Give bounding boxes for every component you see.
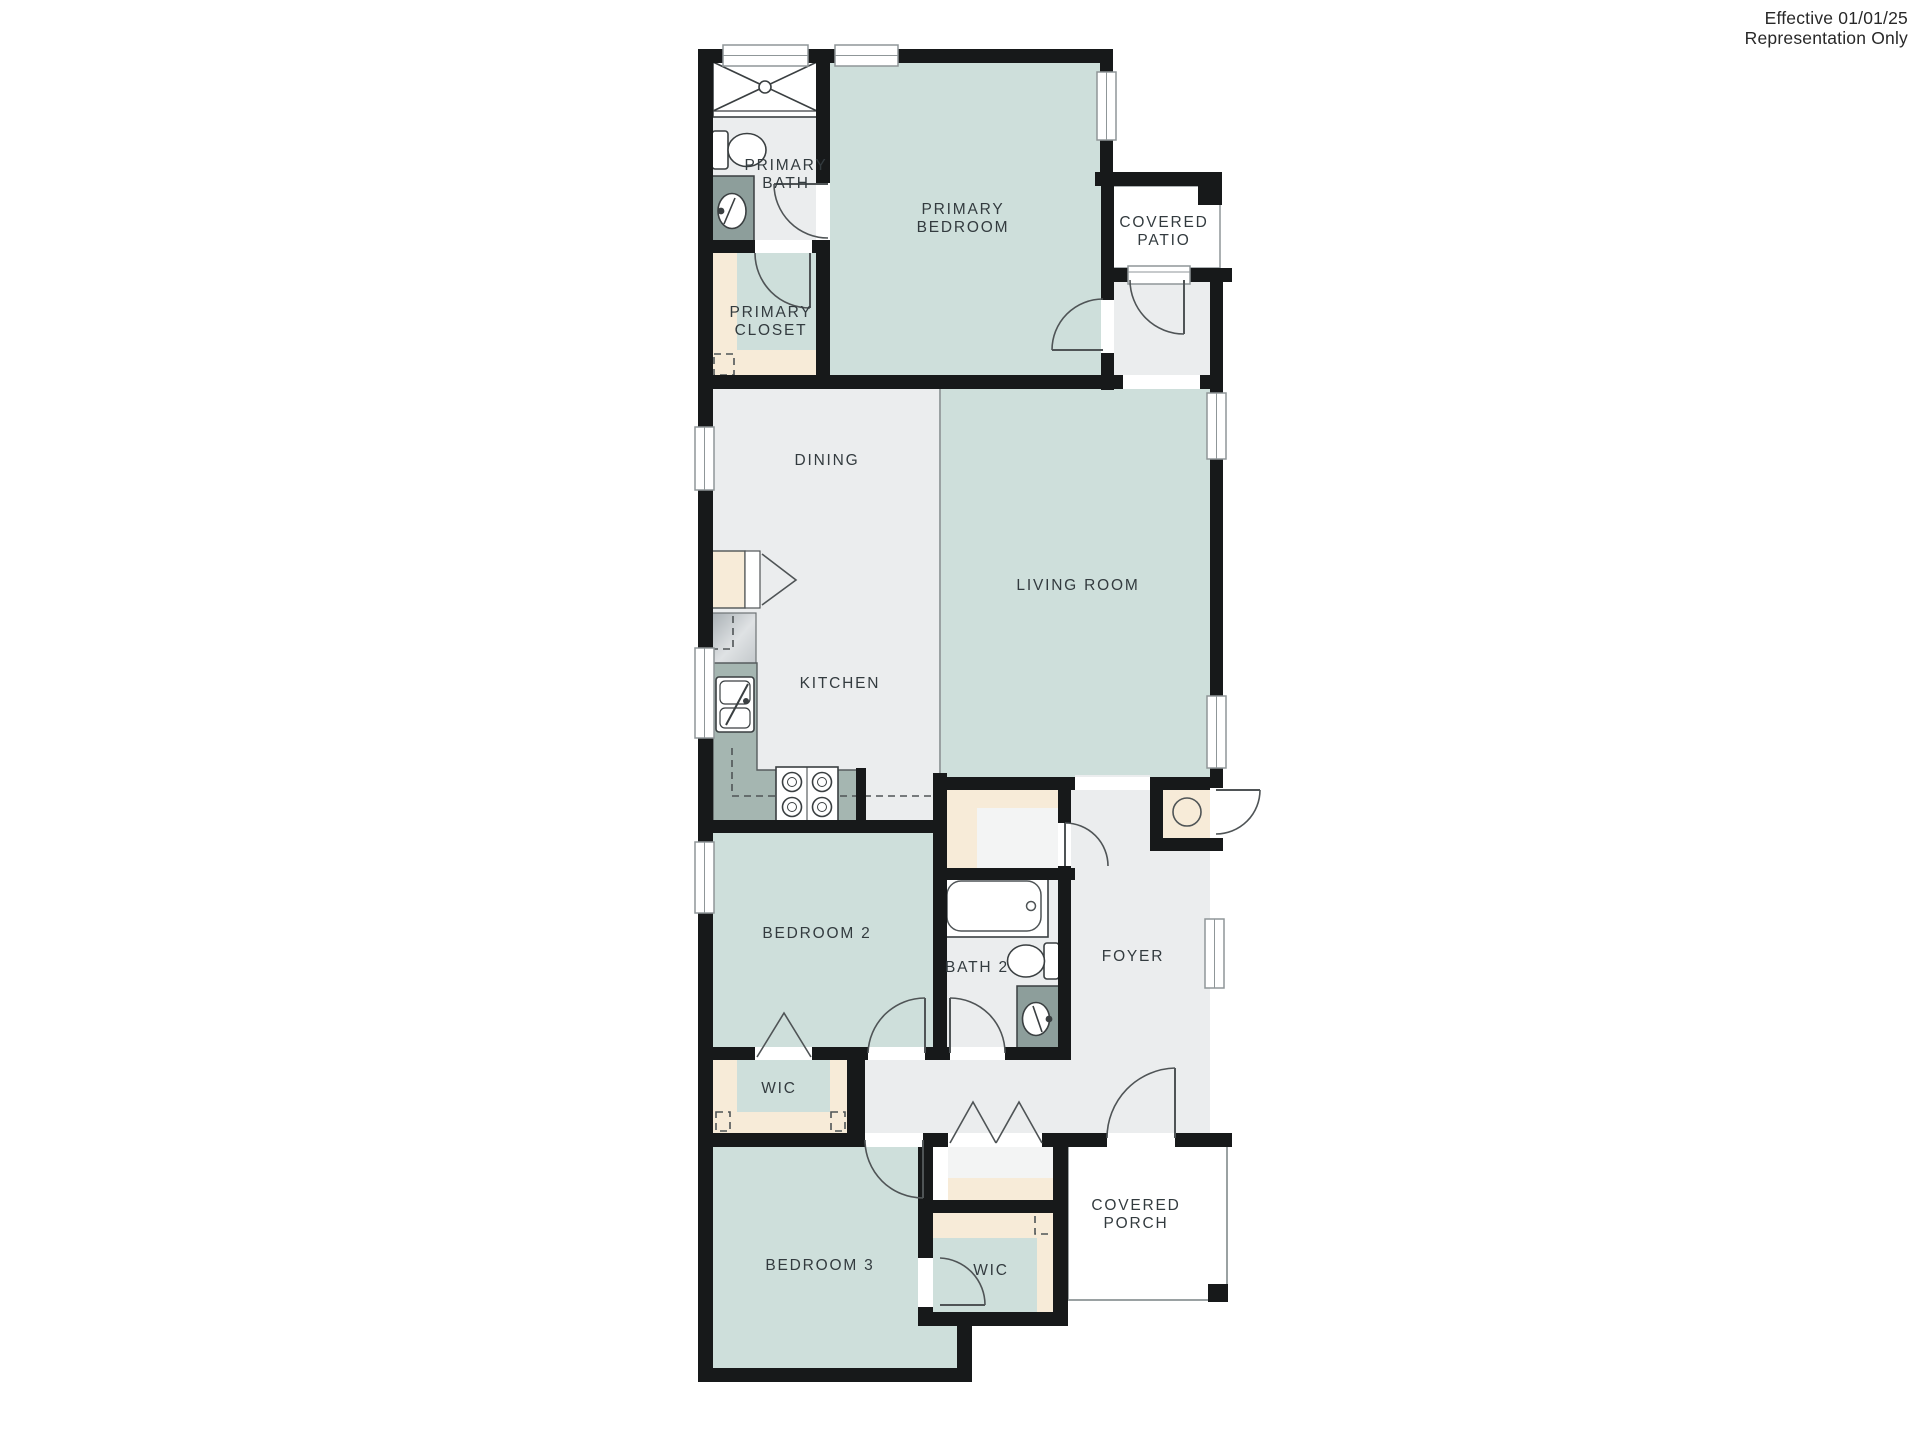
water-heater-icon: [1173, 798, 1201, 826]
effective-date-annotation: Effective 01/01/25 Representation Only: [1745, 8, 1908, 48]
window-icon: [835, 45, 898, 66]
label-bedroom-3: BEDROOM 3: [765, 1257, 874, 1274]
label-primary-closet: PRIMARYCLOSET: [730, 304, 813, 339]
window-icon: [1207, 393, 1226, 459]
label-primary-bedroom: PRIMARYBEDROOM: [917, 201, 1010, 236]
label-bedroom-2: BEDROOM 2: [762, 925, 871, 942]
label-foyer: FOYER: [1102, 948, 1164, 965]
kitchen-sink-icon: [716, 677, 754, 732]
label-dining: DINING: [794, 452, 859, 469]
label-wic-bed3: WIC: [973, 1262, 1009, 1279]
effective-date-text: Effective 01/01/25: [1765, 8, 1908, 28]
window-icon: [695, 648, 714, 738]
floorplan-page: PRIMARYBATH PRIMARYCLOSET PRIMARYBEDROOM…: [0, 0, 1920, 1440]
vanity-sink-icon: [712, 176, 754, 246]
shower-icon: [713, 62, 817, 117]
representation-text: Representation Only: [1745, 28, 1908, 48]
vanity-sink-icon: [1017, 986, 1059, 1053]
label-wic-bed2: WIC: [761, 1080, 797, 1097]
toilet-icon: [1008, 943, 1060, 979]
patio-door-threshold: [1128, 266, 1190, 284]
label-kitchen: KITCHEN: [800, 675, 881, 692]
label-covered-porch: COVEREDPORCH: [1091, 1197, 1180, 1232]
window-icon: [723, 45, 808, 66]
stove-icon: [776, 767, 838, 822]
room-hall: [865, 1060, 1071, 1133]
window-icon: [1207, 696, 1226, 768]
floorplan-drawing: PRIMARYBATH PRIMARYCLOSET PRIMARYBEDROOM…: [0, 0, 1920, 1440]
window-icon: [1097, 72, 1116, 140]
window-icon: [1205, 919, 1224, 988]
room-fills: [713, 62, 1228, 1368]
label-bath-2: BATH 2: [945, 959, 1009, 976]
bathtub-icon: [940, 875, 1048, 937]
room-hall-closet-shelf: [948, 1178, 1053, 1200]
window-icon: [695, 842, 714, 913]
label-living-room: LIVING ROOM: [1016, 577, 1139, 594]
room-coat-closet-floor: [977, 808, 1058, 868]
window-icon: [695, 427, 714, 490]
refrigerator-icon: [712, 613, 756, 664]
